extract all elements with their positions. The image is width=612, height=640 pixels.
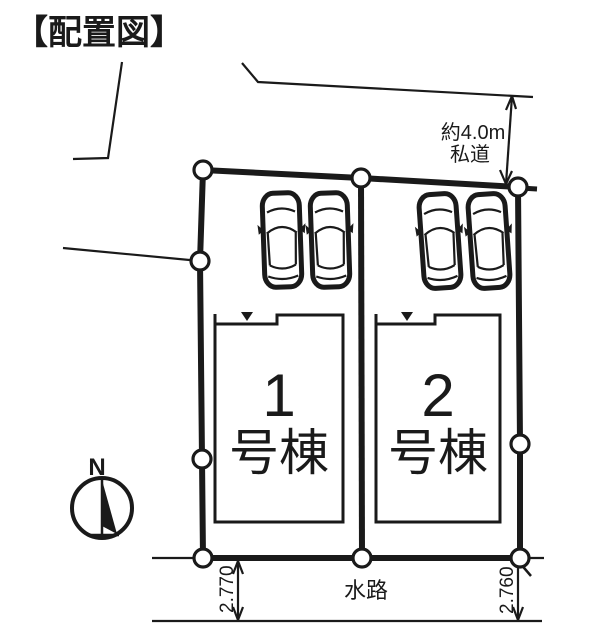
private-road-width-label: 約4.0m	[441, 121, 505, 144]
road-line-left	[73, 62, 122, 159]
building-1-number: 1	[262, 362, 295, 429]
road-line-top	[242, 63, 533, 97]
dimension-left-value: 2.770	[217, 565, 238, 613]
boundary-marker-icon	[511, 435, 529, 453]
road-line-west	[63, 248, 200, 261]
parking-cars	[256, 192, 516, 289]
entrance-marker-icon	[241, 312, 253, 321]
boundary-marker-icon	[191, 252, 209, 270]
waterway: 水路	[152, 578, 542, 621]
car-icon	[304, 192, 355, 288]
boundary-marker-icon	[353, 549, 371, 567]
building-2-number: 2	[421, 362, 454, 429]
boundary-marker-icon	[352, 169, 370, 187]
compass-needle-fill	[102, 480, 117, 534]
entrance-marker-icon	[401, 312, 413, 321]
north-compass-icon: N	[72, 454, 132, 538]
car-icon	[462, 192, 516, 289]
building-1-suffix: 号棟	[229, 425, 329, 481]
private-road-dimension: 約4.0m 私道	[441, 96, 516, 184]
boundary-marker-icon	[194, 549, 212, 567]
boundary-right	[518, 187, 520, 558]
dimension-left: 2.770	[217, 561, 243, 620]
compass-north-label: N	[88, 454, 105, 481]
car-icon	[256, 192, 307, 288]
boundary-marker-icon	[193, 450, 211, 468]
dimension-right-value: 2.760	[497, 566, 518, 614]
site-plan-page: 【配置図】 約4.0m 私道	[0, 0, 612, 640]
waterway-label: 水路	[344, 578, 388, 603]
building-1: 1 号棟	[215, 312, 343, 522]
private-road-label: 私道	[450, 143, 490, 166]
page-title: 【配置図】	[14, 14, 184, 52]
building-2: 2 号棟	[376, 312, 500, 522]
boundary-marker-icon	[509, 178, 527, 196]
boundary-divider	[361, 178, 362, 558]
boundary-marker-icon	[511, 549, 529, 567]
car-icon	[413, 192, 467, 289]
boundary-marker-icon	[194, 161, 212, 179]
building-2-suffix: 号棟	[388, 425, 488, 481]
site-plan-canvas: 【配置図】 約4.0m 私道	[0, 0, 612, 640]
dimension-right: 2.760	[497, 564, 523, 620]
boundary-left	[200, 170, 203, 558]
